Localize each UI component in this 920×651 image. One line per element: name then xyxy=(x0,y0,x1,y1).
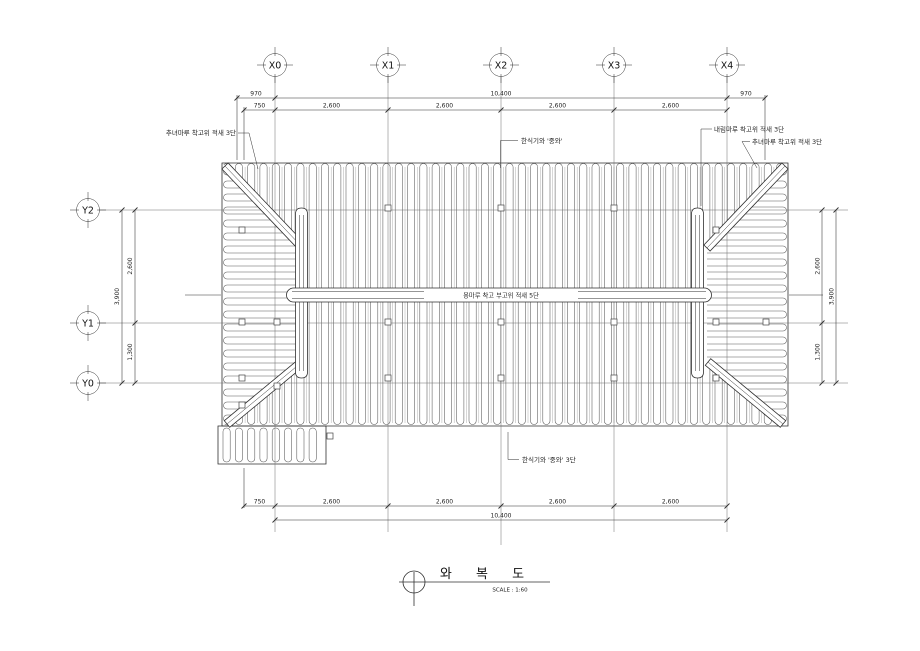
fixing-marker-square xyxy=(611,319,617,325)
fixing-marker-square xyxy=(239,375,245,381)
title-block: 와 복 도 SCALE : 1:60 xyxy=(399,567,550,606)
roof-fixing-markers xyxy=(239,205,769,439)
roof-tile-column xyxy=(235,428,242,462)
grid-bubble-x3: X3 xyxy=(596,47,632,83)
roof-tile-column xyxy=(260,428,267,462)
roof-tile-row xyxy=(224,259,307,266)
grid-bubble-label: Y0 xyxy=(81,379,94,390)
dim-label-right-lower: 1,300 xyxy=(815,343,822,360)
roof-tile-column xyxy=(235,164,242,425)
annotation-tile-note-bottom: 한식기와 '중와' 3단 xyxy=(522,455,576,464)
roof-tile-row xyxy=(704,259,787,266)
roof-tile-row xyxy=(224,350,307,357)
ridge-label: 용마루 착고 부고위 적새 5단 xyxy=(463,291,539,300)
grid-bubble-y0: Y0 xyxy=(70,365,106,401)
fixing-marker-square xyxy=(611,205,617,211)
roof-tile-row xyxy=(704,298,787,305)
grid-bubble-label: X1 xyxy=(382,61,395,72)
dim-label-top-bay: 2,600 xyxy=(436,103,453,110)
grid-bubble-x2: X2 xyxy=(483,47,519,83)
annotation-top-right-descending: 내림마루 착고위 적새 3단 xyxy=(714,125,784,134)
grid-bubble-label: Y2 xyxy=(81,206,94,217)
dim-label-bottom-eave: 750 xyxy=(254,499,266,506)
fixing-marker-square xyxy=(274,383,280,389)
fixing-marker-square xyxy=(385,319,391,325)
fixing-marker-square xyxy=(498,375,504,381)
roof-tile-row xyxy=(704,350,787,357)
roof-tile-row xyxy=(704,272,787,279)
drawing-sheet: 용마루 착고 부고위 적새 5단 970 10,400 970 750 2,60… xyxy=(0,0,920,651)
grid-bubble-label: Y1 xyxy=(81,319,94,330)
roof-tile-row xyxy=(224,246,307,253)
roof-tile-column xyxy=(764,164,771,425)
dim-label-bottom-overall: 10,400 xyxy=(491,513,512,520)
fixing-marker-square xyxy=(713,375,719,381)
dim-label-top-center: 10,400 xyxy=(491,91,512,98)
roof-tile-row xyxy=(224,337,307,344)
annotation-top-left-hip: 추녀마루 착고위 적새 3단 xyxy=(166,128,236,137)
roof-tile-column xyxy=(715,164,722,425)
roof-tile-row xyxy=(224,311,307,318)
dim-label-top-left: 970 xyxy=(250,91,262,98)
dim-label-left-lower: 1,300 xyxy=(127,343,134,360)
fixing-marker-square xyxy=(713,319,719,325)
roof-tile-column xyxy=(297,428,304,462)
leader-line xyxy=(508,432,519,460)
fixing-marker-square xyxy=(611,375,617,381)
dim-label-top-bay: 2,600 xyxy=(662,103,679,110)
grid-bubble-y2: Y2 xyxy=(70,192,106,228)
grid-bubble-y1: Y1 xyxy=(70,305,106,341)
dim-label-right-upper: 2,600 xyxy=(815,257,822,274)
fixing-marker-square xyxy=(713,227,719,233)
roof-tile-column xyxy=(777,164,784,425)
grid-bubble-label: X0 xyxy=(269,61,282,72)
scale-text: SCALE : 1:60 xyxy=(492,588,528,594)
dim-label-left-overall: 3,900 xyxy=(114,288,121,305)
roof-tile-row xyxy=(224,220,307,227)
annotation-tile-note-top: 한식기와 '중와' xyxy=(521,136,563,145)
grid-bubble-label: X4 xyxy=(721,61,734,72)
dim-label-bottom-bay: 2,600 xyxy=(323,499,340,506)
roof-tile-row xyxy=(224,272,307,279)
fixing-marker-square xyxy=(385,205,391,211)
descending-ridge-upper-left xyxy=(296,208,308,290)
roof-tile-row xyxy=(224,324,307,331)
fixing-marker-square xyxy=(239,319,245,325)
roof-tile-column xyxy=(272,428,279,462)
roof-tile-column xyxy=(285,428,292,462)
fixing-marker-square xyxy=(239,227,245,233)
title-text: 와 복 도 xyxy=(440,567,534,582)
grid-bubble-x4: X4 xyxy=(709,47,745,83)
roof-tile-column xyxy=(248,428,255,462)
annotation-top-right-hip: 추녀마루 착고위 적새 3단 xyxy=(752,137,822,146)
dim-label-top-bay: 2,600 xyxy=(323,103,340,110)
dim-label-right-overall: 3,900 xyxy=(829,288,836,305)
dim-label-top-eave: 750 xyxy=(254,103,266,110)
fixing-marker-square xyxy=(385,375,391,381)
roof-plan-drawing: 용마루 착고 부고위 적새 5단 970 10,400 970 750 2,60… xyxy=(0,0,920,651)
dim-label-top-bay: 2,600 xyxy=(549,103,566,110)
fixing-marker-square xyxy=(327,433,333,439)
roof-tile-row xyxy=(704,246,787,253)
main-ridge-band: 용마루 착고 부고위 적새 5단 xyxy=(287,288,712,302)
descending-ridge-lower-right xyxy=(692,300,704,378)
grid-bubble-x1: X1 xyxy=(370,47,406,83)
fixing-marker-square xyxy=(274,319,280,325)
roof-tile-row xyxy=(704,285,787,292)
dim-label-left-upper: 2,600 xyxy=(127,257,134,274)
descending-ridge-lower-left xyxy=(296,300,308,378)
fixing-marker-square xyxy=(239,402,245,408)
grid-bubble-x0: X0 xyxy=(257,47,293,83)
leader-line xyxy=(238,133,258,169)
grid-bubble-label: X3 xyxy=(608,61,621,72)
roof-tile-row xyxy=(704,311,787,318)
dim-label-bottom-bay: 2,600 xyxy=(662,499,679,506)
grid-bubble-label: X2 xyxy=(495,61,508,72)
roof-tile-row xyxy=(224,376,307,383)
fixing-marker-square xyxy=(498,319,504,325)
fixing-marker-square xyxy=(763,319,769,325)
dim-label-top-right: 970 xyxy=(740,91,752,98)
roof-tile-row xyxy=(704,337,787,344)
dim-label-bottom-bay: 2,600 xyxy=(549,499,566,506)
fixing-marker-square xyxy=(498,205,504,211)
roof-tiles-lower-extension xyxy=(223,428,316,462)
roof-tile-column xyxy=(223,428,230,462)
roof-tile-column xyxy=(223,164,230,425)
dim-label-bottom-bay: 2,600 xyxy=(436,499,453,506)
descending-ridge-upper-right xyxy=(692,208,704,290)
roof-tile-column xyxy=(309,428,316,462)
